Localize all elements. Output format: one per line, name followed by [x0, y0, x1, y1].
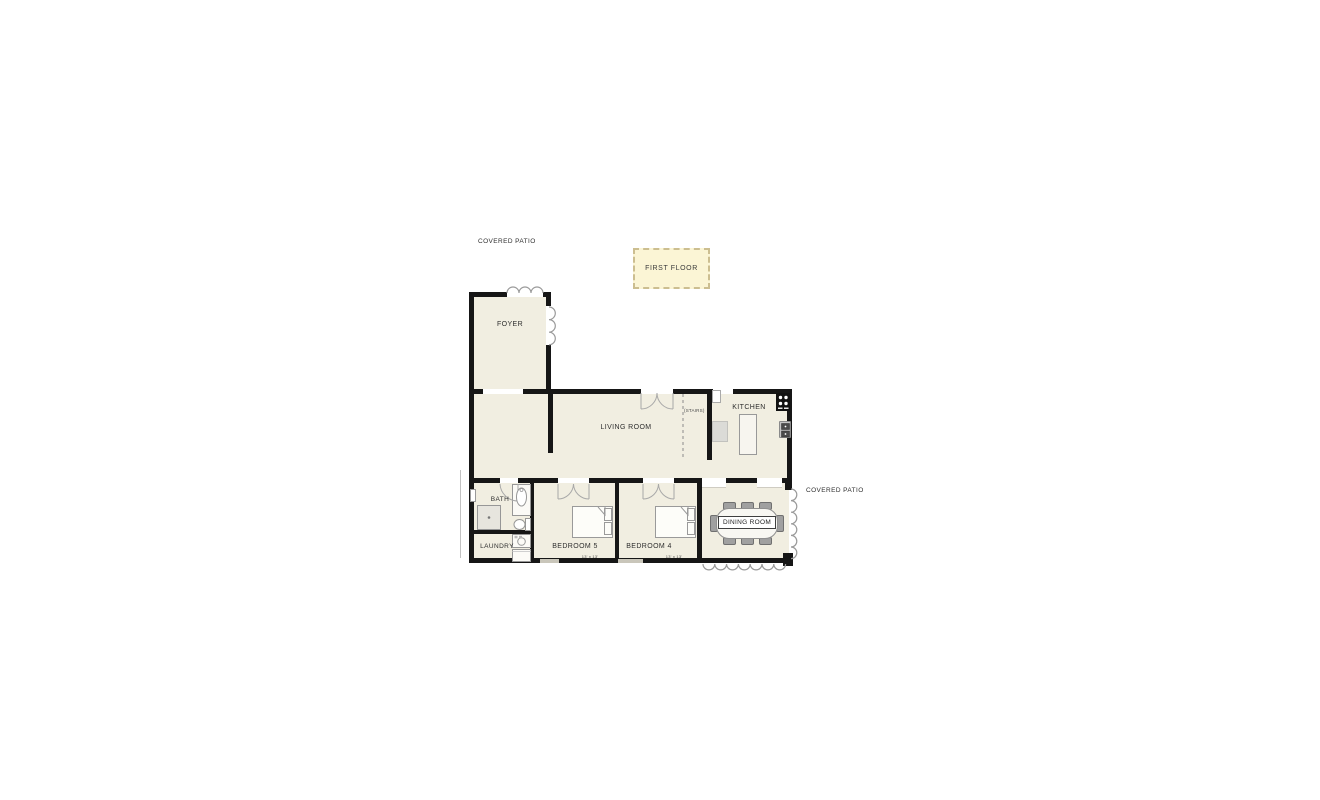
kitchen-island: [739, 414, 757, 455]
dining-window-left: [702, 478, 726, 488]
wall-main-2: [523, 389, 641, 394]
opening-foyer-top: [507, 292, 543, 297]
dryer-icon: [512, 549, 531, 562]
pillow-bedroom5-b: [604, 522, 612, 535]
kitchen-label: KITCHEN: [712, 404, 786, 411]
opening-bedroom4-door: [643, 478, 674, 483]
opening-bedroom5-door: [558, 478, 589, 483]
wall-foyer-right-lower: [546, 345, 551, 394]
foyer-floor: [471, 294, 549, 392]
covered-patio-top-label: COVERED PATIO: [478, 238, 536, 245]
foyer-label: FOYER: [471, 321, 549, 328]
wall-dining-bottom: [702, 558, 788, 563]
floor-plan-canvas: FIRST FLOOR COVERED PATIO COVERED PATIO …: [0, 0, 1320, 800]
window-bedroom5: [540, 559, 559, 563]
bath-label: BATH: [480, 496, 520, 503]
pillow-bedroom5-a: [604, 508, 612, 521]
wall-dining-left: [697, 483, 702, 563]
pillow-bedroom4-b: [687, 522, 695, 535]
bedroom5-dims: 13' x 13': [560, 554, 620, 559]
shower-icon: [477, 505, 501, 530]
pillow-bedroom4-a: [687, 508, 695, 521]
wall-lower-2: [518, 478, 558, 483]
living-room-label: LIVING ROOM: [576, 424, 676, 431]
laundry-label: LAUNDRY: [469, 543, 525, 550]
opening-bath-door: [500, 478, 518, 483]
bedroom4-label: BEDROOM 4: [610, 543, 688, 550]
kitchen-counter: [712, 421, 728, 442]
wall-lower-1: [469, 478, 500, 483]
wall-main-1: [469, 389, 483, 394]
patio-edge-line: [460, 470, 461, 558]
wall-left: [469, 292, 474, 563]
wall-alcove: [548, 394, 553, 453]
dining-room-plate: DINING ROOM: [718, 516, 776, 529]
stairs-label: (STAIRS): [684, 408, 705, 413]
kitchen-door-leaf: [712, 390, 721, 403]
wall-foyer-right-upper: [546, 292, 551, 306]
wall-dining-corner-br: [783, 553, 793, 566]
window-bedroom4: [618, 559, 643, 563]
opening-foyer-living: [483, 389, 523, 394]
dining-window-right: [757, 478, 782, 488]
wall-dining-top-corner: [785, 478, 792, 490]
dining-room-label: DINING ROOM: [723, 519, 771, 526]
first-floor-label: FIRST FLOOR: [645, 265, 698, 272]
kitchen-sink-icon: [779, 421, 791, 438]
covered-patio-right-label: COVERED PATIO: [806, 487, 864, 494]
opening-living-door: [641, 389, 673, 394]
bedroom4-dims: 13' x 13': [644, 554, 704, 559]
wall-lower-5: [726, 478, 757, 483]
bedroom5-label: BEDROOM 5: [535, 543, 615, 550]
first-floor-legend: FIRST FLOOR: [633, 248, 710, 289]
wall-bed5-bed4: [615, 483, 619, 563]
wall-foyer-top-left: [469, 292, 507, 297]
bath-window: [470, 489, 476, 502]
